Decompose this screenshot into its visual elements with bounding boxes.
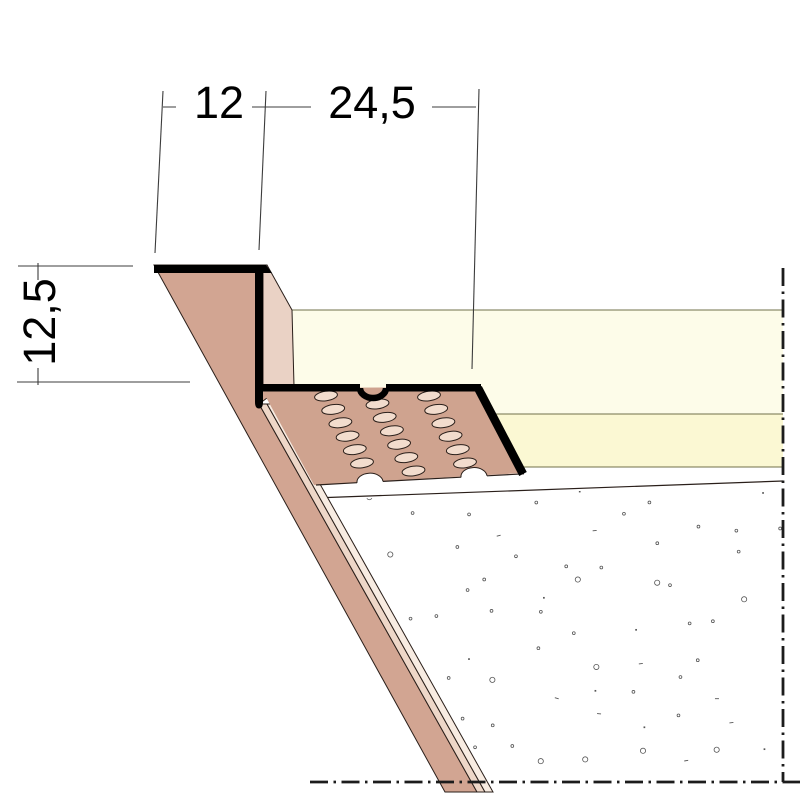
dimension-label-top-right: 24,5 xyxy=(328,77,416,128)
dimension-label-top-left: 12 xyxy=(194,77,244,128)
dimension-label-left: 12,5 xyxy=(14,278,65,366)
profile-cross-section-drawing: 12 24,5 12,5 xyxy=(0,0,800,800)
stipple-mark xyxy=(764,748,766,750)
stipple-mark xyxy=(595,690,597,692)
technical-drawing-page: 12 24,5 12,5 xyxy=(0,0,800,800)
flange-top-thick-left xyxy=(259,384,360,392)
stipple-mark xyxy=(543,597,545,599)
stipple-mark xyxy=(762,492,764,494)
stipple-mark xyxy=(635,629,637,631)
profile-top-bar xyxy=(154,265,272,273)
flange-top-thick-right xyxy=(386,384,481,392)
stipple-mark xyxy=(644,726,646,728)
stipple-mark xyxy=(715,698,719,699)
stipple-mark xyxy=(468,658,470,660)
